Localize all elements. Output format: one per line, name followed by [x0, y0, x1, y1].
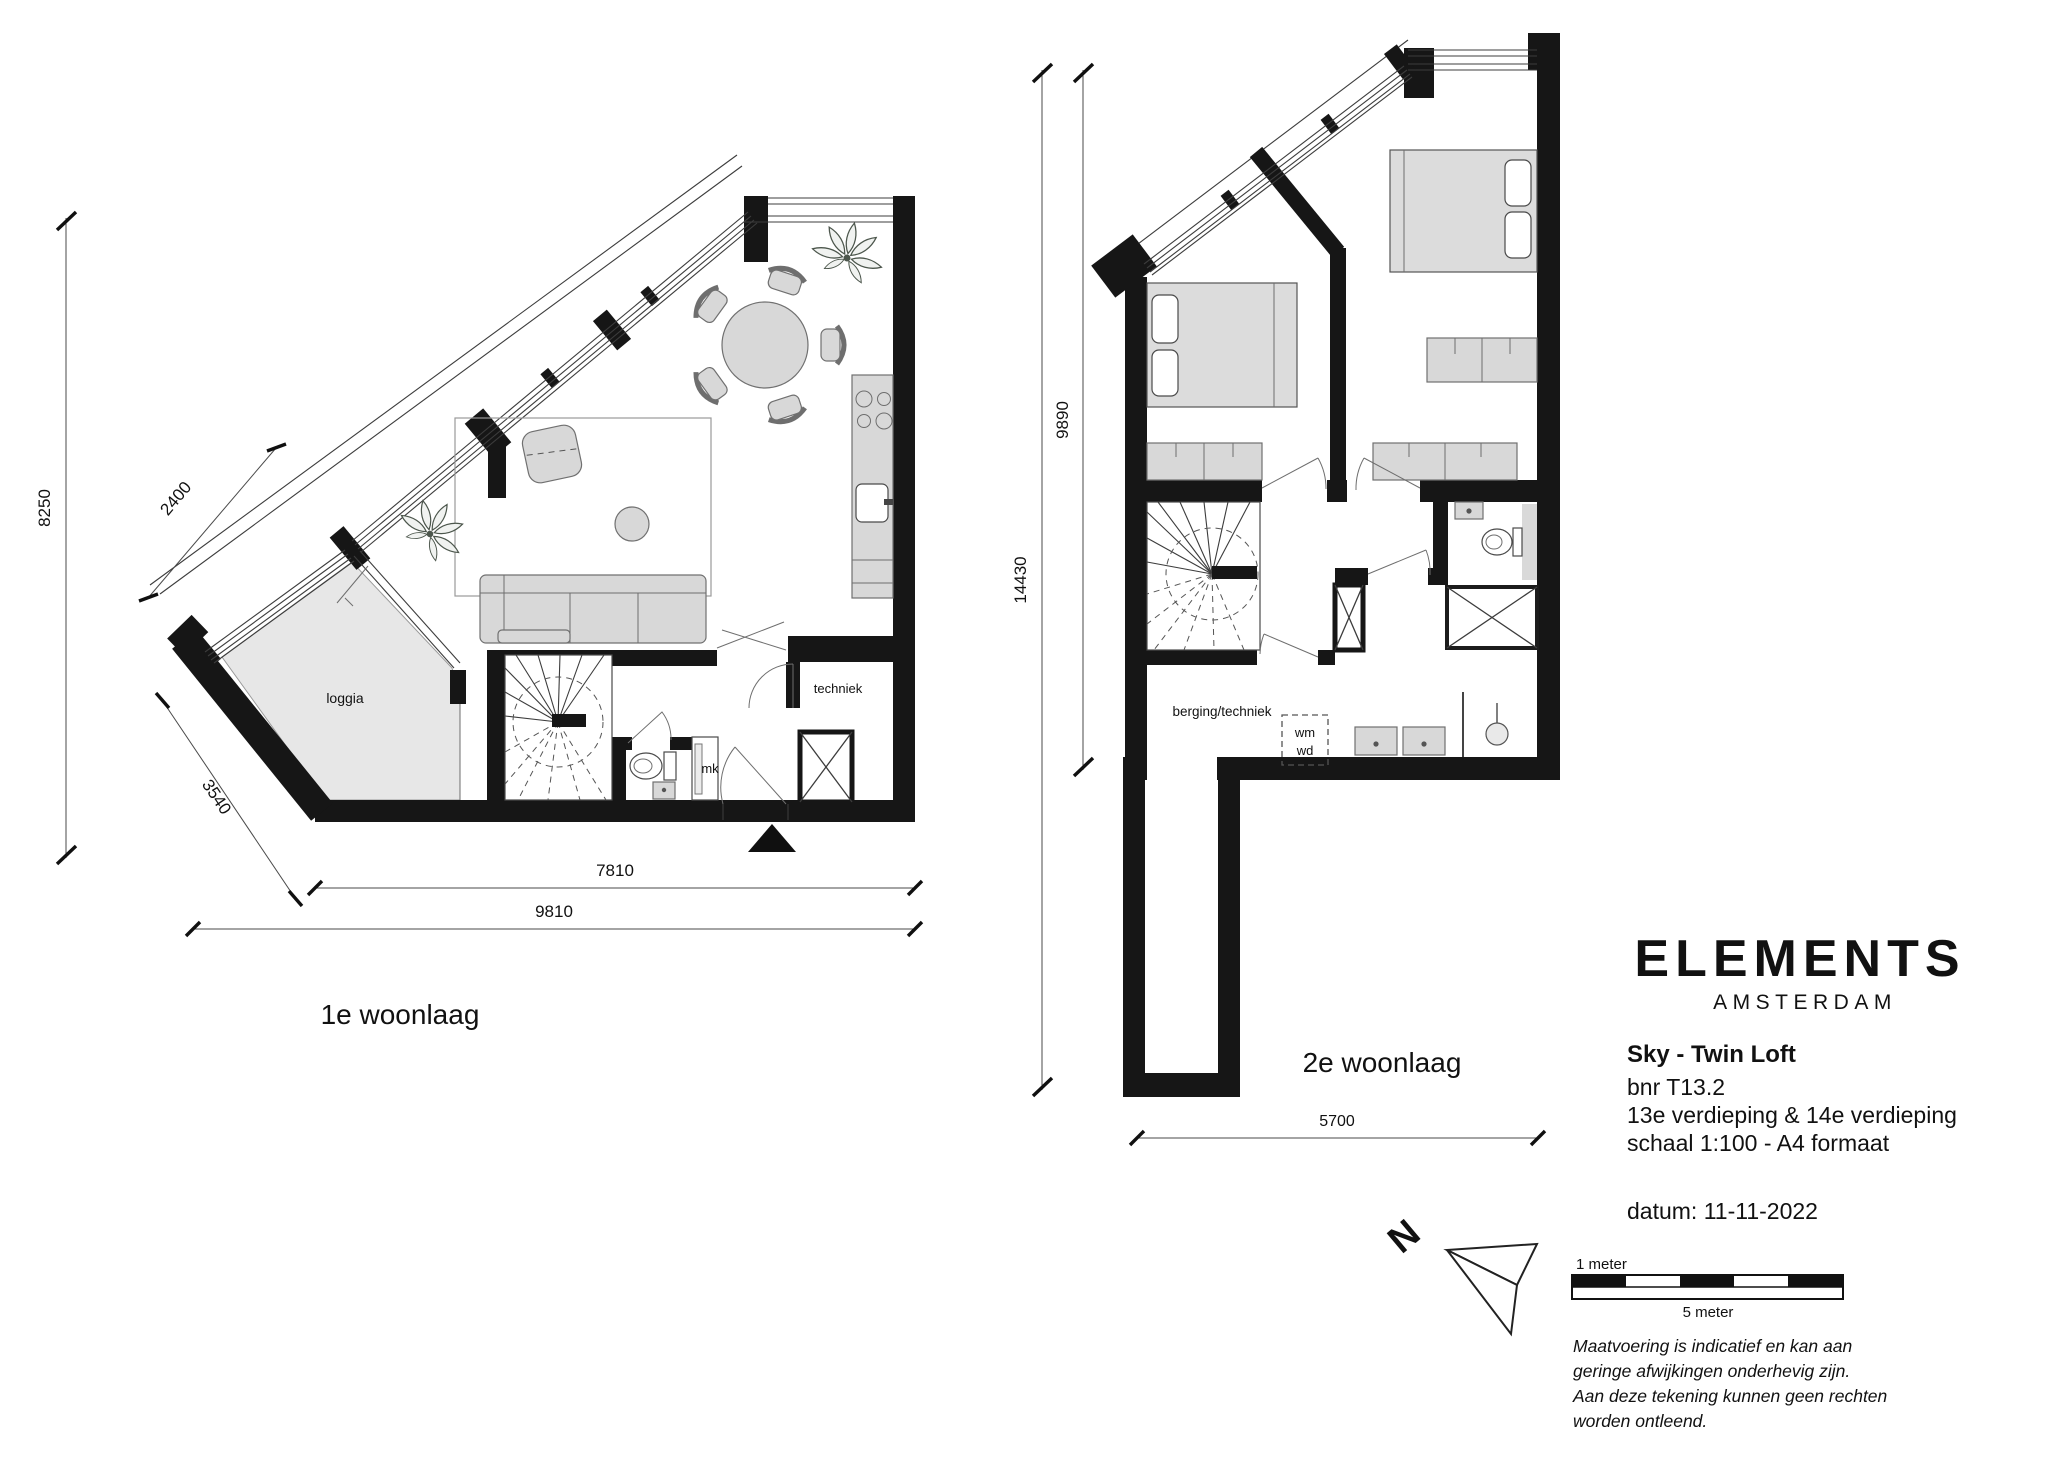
- bed: [1147, 283, 1297, 407]
- coffee-table: [615, 507, 649, 541]
- bedroom-door: [1262, 458, 1326, 489]
- unit-name: Sky - Twin Loft: [1627, 1041, 1796, 1068]
- hall-door: [717, 622, 786, 650]
- north-arrow-icon: N: [1380, 1212, 1537, 1334]
- berging-room: berging/techniek wm wd: [1172, 704, 1328, 765]
- techniek-label: techniek: [814, 681, 863, 696]
- shaft: [1335, 585, 1363, 650]
- date-line: datum: 11-11-2022: [1627, 1198, 1818, 1224]
- washbasin-icon: [1455, 502, 1483, 519]
- svg-text:14430: 14430: [1011, 556, 1030, 603]
- dining-table: [722, 302, 808, 388]
- kitchen-counter: [852, 375, 893, 598]
- bathroom-door: [1368, 550, 1430, 575]
- scale-line: schaal 1:100 - A4 formaat: [1627, 1130, 1890, 1156]
- brand-logo: ELEMENTS: [1634, 930, 1965, 988]
- mk-label: mk: [701, 761, 719, 776]
- plan-2e-woonlaag: berging/techniek wm wd 9890 14430 5700 2…: [1011, 33, 1560, 1145]
- toilet-room: [628, 712, 676, 799]
- scale-bar-large-label: 5 meter: [1683, 1304, 1734, 1321]
- svg-text:3540: 3540: [198, 776, 235, 818]
- kitchen-sink-icon: [856, 484, 893, 522]
- spiral-stair: [505, 655, 612, 800]
- loggia-label: loggia: [326, 690, 364, 706]
- dim-7810: 7810: [308, 861, 922, 895]
- plan2-outer-boundary: [1130, 40, 1408, 250]
- disclaimer-note: Maatvoering is indicatief en kan aan ger…: [1572, 1336, 1887, 1431]
- wd-label: wd: [1296, 743, 1314, 758]
- plan-1e-woonlaag: mk techniek loggia 8250 2400: [35, 155, 922, 1030]
- shower-column-icon: [1463, 692, 1508, 757]
- mk-closet: mk: [692, 737, 719, 800]
- north-label: N: [1380, 1212, 1428, 1262]
- plant-icon: [390, 491, 473, 569]
- svg-text:5700: 5700: [1319, 1113, 1355, 1130]
- svg-text:2400: 2400: [156, 478, 195, 519]
- toilet-icon: [630, 752, 676, 780]
- svg-text:9810: 9810: [535, 902, 573, 921]
- floors-line: 13e verdieping & 14e verdieping: [1627, 1102, 1957, 1128]
- shaft: [800, 732, 852, 802]
- double-sink-icon: [1355, 727, 1445, 755]
- wm-label: wm: [1294, 725, 1315, 740]
- shower-icon: [1447, 587, 1537, 648]
- dim-8250: 8250: [35, 212, 76, 864]
- sofa: [480, 575, 706, 643]
- svg-text:9890: 9890: [1053, 401, 1072, 439]
- unit-number: bnr T13.2: [1627, 1074, 1725, 1100]
- hand-basin-icon: [653, 782, 675, 799]
- dim-5700: 5700: [1130, 1113, 1545, 1145]
- disclaimer-line: Maatvoering is indicatief en kan aan: [1573, 1336, 1852, 1356]
- plan2-title: 2e woonlaag: [1303, 1047, 1462, 1078]
- toilet-icon: [1482, 528, 1522, 556]
- stair-door: [1260, 634, 1318, 657]
- brand-city: AMSTERDAM: [1713, 991, 1897, 1014]
- floorplan-sheet: mk techniek loggia 8250 2400: [0, 0, 2048, 1472]
- entry-arrow-icon: [748, 824, 796, 852]
- dim-9810: 9810: [186, 902, 922, 936]
- duct-strip: [1522, 504, 1537, 580]
- techniek-room: techniek: [814, 681, 863, 696]
- plan1-title: 1e woonlaag: [321, 999, 480, 1030]
- dim-14430: 14430: [1011, 64, 1052, 1096]
- architectural-drawing: mk techniek loggia 8250 2400: [0, 0, 2048, 1472]
- svg-text:7810: 7810: [596, 861, 634, 880]
- berging-label: berging/techniek: [1172, 704, 1271, 719]
- bed: [1390, 150, 1537, 272]
- disclaimer-line: Aan deze tekening kunnen geen rechten: [1572, 1386, 1887, 1406]
- plant-icon: [811, 222, 882, 284]
- svg-text:8250: 8250: [35, 489, 54, 527]
- title-block: ELEMENTS AMSTERDAM Sky - Twin Loft bnr T…: [1627, 930, 1966, 1224]
- disclaimer-line: geringe afwijkingen onderhevig zijn.: [1573, 1361, 1850, 1381]
- scale-bar: 1 meter 5 meter: [1572, 1256, 1843, 1321]
- pouf: [520, 423, 584, 485]
- dresser: [1147, 443, 1262, 480]
- scale-bar-small-label: 1 meter: [1576, 1256, 1627, 1273]
- dim-9890: 9890: [1053, 64, 1093, 776]
- spiral-stair: [1147, 502, 1260, 650]
- disclaimer-line: worden ontleend.: [1573, 1411, 1707, 1431]
- dresser: [1427, 338, 1537, 382]
